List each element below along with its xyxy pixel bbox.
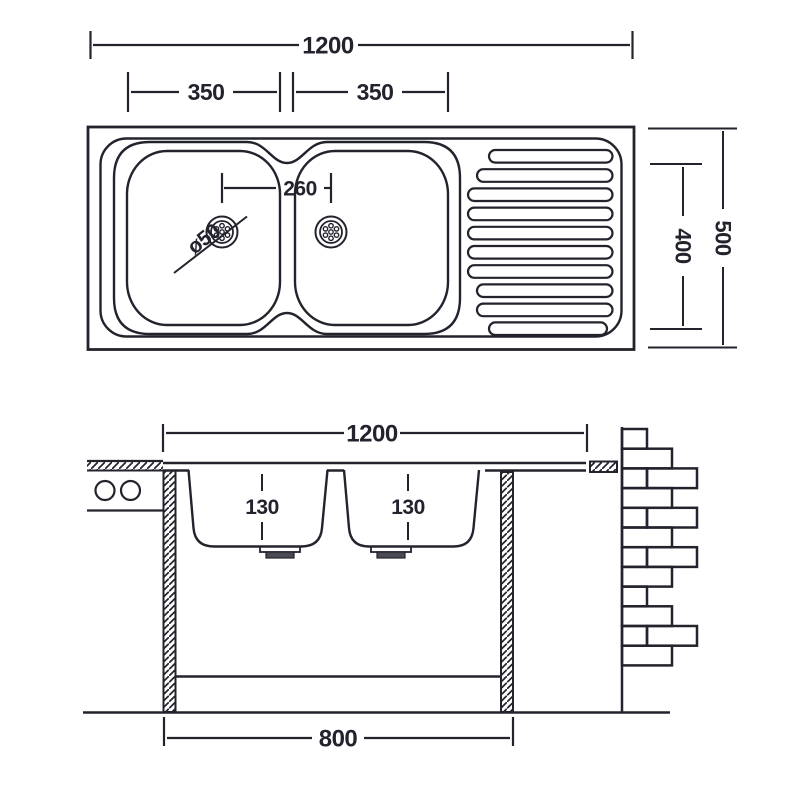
dim-right-bowl-width-label: 350 [357,79,394,105]
drainboard-slot [489,150,613,163]
drain-hole [329,236,333,240]
drain-flange-right [371,547,411,559]
dim-inner-depth-label: 400 [670,228,695,263]
brick [647,547,697,567]
brick [622,587,647,607]
tap-hole [96,481,115,500]
brick [622,508,647,528]
drain-hole [329,224,333,228]
drainboard [468,150,613,335]
counter-hatch [87,461,163,471]
leg-right [501,472,513,712]
brick-wall [622,427,697,713]
section-view: 1200 [83,421,697,753]
bowl-right [295,151,448,325]
brick [622,468,647,488]
brick [622,567,672,587]
drainboard-slot [468,188,613,201]
dim-base-width-label: 800 [319,726,358,753]
brick [622,449,672,469]
brick [622,547,647,567]
drain-hole [220,224,224,228]
bowl-surround-outline [114,142,460,334]
drain-hole [329,230,333,234]
dim-drain-diameter-label: ø50 [183,219,224,258]
drainboard-slot [468,265,613,278]
drainboard-slot [477,169,613,182]
drain-hole [323,227,327,231]
brick [622,626,647,646]
sink-technical-drawing: 1200 350 350 [0,0,800,800]
drawing-canvas: 1200 350 350 [0,0,800,800]
dim-drain-spacing-label: 260 [283,178,317,201]
drain-hole [323,233,327,237]
left-counter-section [87,461,163,511]
leg-left [164,471,176,713]
top-view: 1200 350 350 [88,31,737,350]
drain-hole [334,233,338,237]
brick [622,429,647,449]
dim-top-overall-width-label: 1200 [302,33,354,60]
drain-right [316,217,347,248]
dim-right-bowl-depth-label: 130 [391,496,425,519]
brick [647,468,697,488]
brick [647,508,697,528]
drainboard-slot [468,227,613,240]
tap-hole [121,481,140,500]
drain-flange-left [260,547,300,559]
dim-left-bowl-depth-label: 130 [245,496,279,519]
dim-overall-depth-label: 500 [710,220,735,255]
brick [647,626,697,646]
brick [622,646,672,666]
dim-section-overall-width-label: 1200 [346,421,398,448]
brick [622,488,672,508]
countertop-lines [163,463,586,471]
drainboard-slot [477,284,613,297]
brick [622,606,672,626]
drainboard-slot [489,322,607,335]
right-counter-stub [590,462,617,473]
drainboard-slot [468,246,613,259]
brick [622,528,672,548]
drain-hole [334,227,338,231]
dim-left-bowl-width-label: 350 [188,79,225,105]
drainboard-slot [468,208,613,221]
drainboard-slot [477,304,613,317]
dim-top-overall-width [91,31,633,59]
